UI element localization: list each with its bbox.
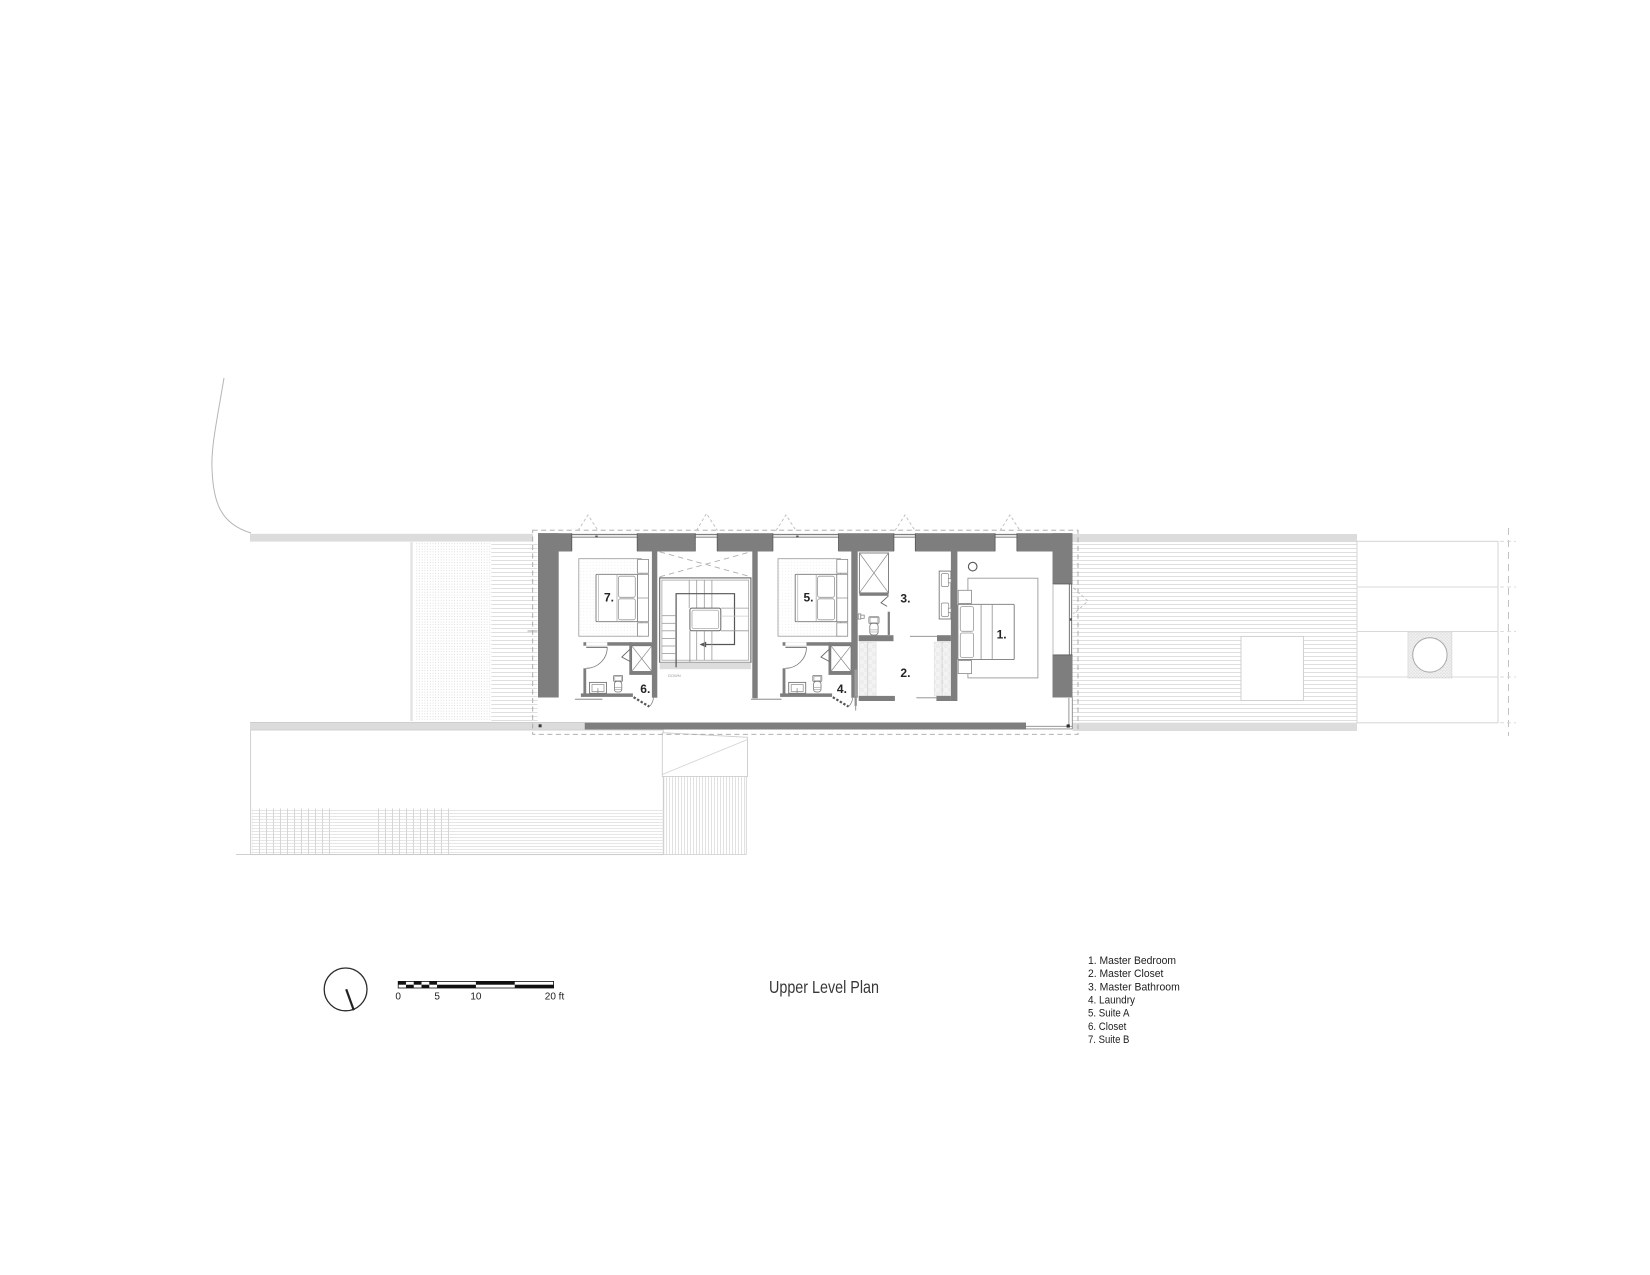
svg-text:20 ft: 20 ft — [545, 992, 565, 1003]
svg-text:4. Laundry: 4. Laundry — [1088, 995, 1135, 1007]
svg-text:7.: 7. — [604, 591, 614, 605]
svg-text:5: 5 — [434, 992, 440, 1003]
svg-text:DOWN: DOWN — [668, 673, 681, 678]
svg-text:Upper Level Plan: Upper Level Plan — [769, 977, 879, 997]
svg-text:2. Master Closet: 2. Master Closet — [1088, 968, 1164, 980]
svg-text:5.: 5. — [803, 591, 813, 605]
svg-text:2.: 2. — [900, 666, 910, 680]
svg-text:6.: 6. — [640, 682, 650, 696]
svg-text:3. Master Bathroom: 3. Master Bathroom — [1088, 981, 1180, 993]
svg-text:3.: 3. — [900, 591, 910, 605]
svg-text:1. Master Bedroom: 1. Master Bedroom — [1088, 955, 1176, 967]
svg-text:4.: 4. — [837, 682, 847, 696]
svg-text:1.: 1. — [997, 627, 1007, 641]
svg-text:6. Closet: 6. Closet — [1088, 1021, 1127, 1033]
svg-text:0: 0 — [395, 992, 401, 1003]
svg-text:5. Suite A: 5. Suite A — [1088, 1008, 1130, 1020]
svg-text:10: 10 — [470, 992, 482, 1003]
svg-text:7. Suite B: 7. Suite B — [1088, 1034, 1129, 1046]
